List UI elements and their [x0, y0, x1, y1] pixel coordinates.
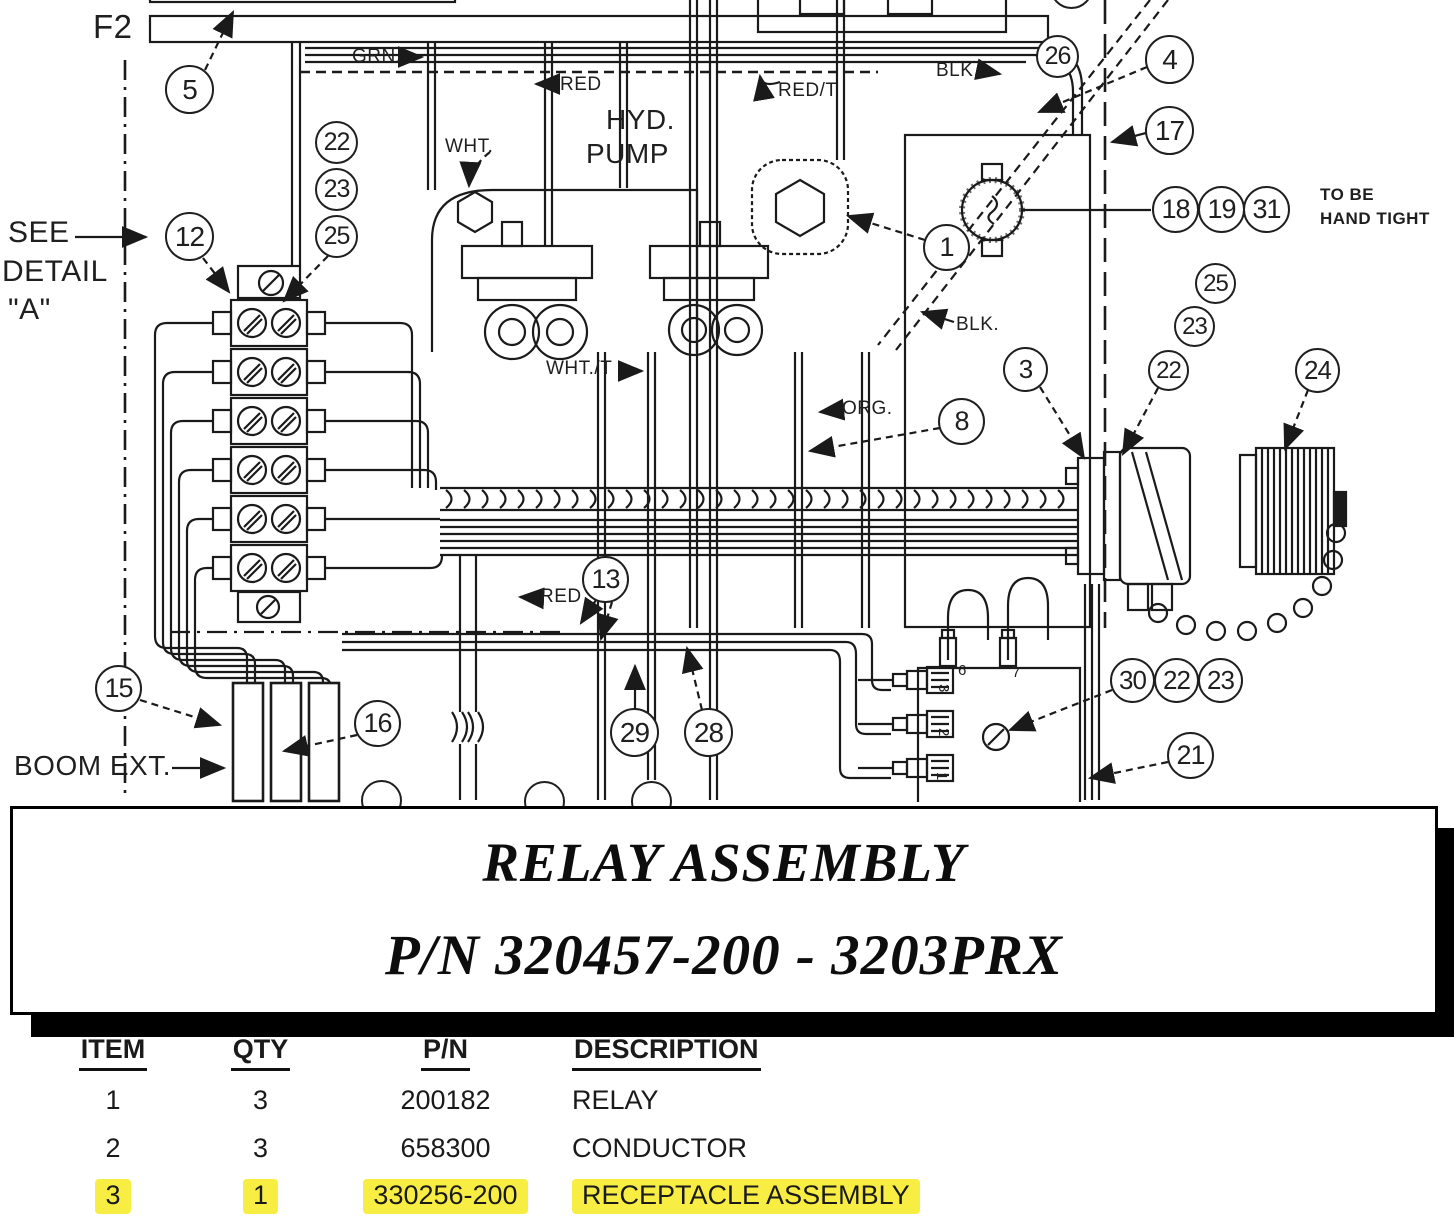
cell-item: 1	[38, 1085, 188, 1116]
label-see: SEE	[8, 216, 70, 250]
column-header-qty: QTY	[188, 1034, 333, 1071]
balloon-23: 23	[1198, 658, 1243, 703]
column-header-item: ITEM	[38, 1034, 188, 1071]
cell-item: 2	[38, 1133, 188, 1164]
label-detail-a: "A"	[8, 293, 51, 327]
cell-pn: 658300	[333, 1133, 558, 1164]
table-row-conductor: 2 3 658300 CONDUCTOR	[0, 1124, 1100, 1172]
parts-table: ITEM QTY P/N DESCRIPTION 1 3 200182 RELA…	[0, 1032, 1100, 1219]
balloon-4: 4	[1145, 35, 1194, 84]
balloon-23: 23	[1174, 306, 1215, 347]
balloon-31: 31	[1243, 186, 1290, 233]
balloon-13: 13	[582, 556, 629, 603]
label-blk-top: BLK.	[936, 60, 979, 82]
balloon-16: 16	[354, 700, 401, 747]
balloon-26: 26	[1036, 35, 1079, 78]
cell-description: CONDUCTOR	[558, 1133, 1100, 1164]
column-header-pn: P/N	[333, 1034, 558, 1071]
label-pump: PUMP	[586, 138, 669, 170]
balloon-25: 25	[1195, 263, 1236, 304]
balloon-22: 22	[1154, 658, 1199, 703]
balloon-24: 24	[1295, 348, 1340, 393]
wiring-diagram-page: 5222325122264171819312523223241813151629…	[0, 0, 1454, 1219]
balloon-22: 22	[315, 121, 358, 164]
label-blk-mid: BLK.	[956, 314, 999, 336]
balloon-25: 25	[315, 215, 358, 258]
balloon-15: 15	[95, 665, 142, 712]
label-pin-2: 2	[935, 728, 952, 737]
balloon-19: 19	[1198, 186, 1245, 233]
label-pin-1: 1	[933, 772, 950, 781]
cell-qty: 3	[188, 1085, 333, 1116]
balloon-30: 30	[1110, 658, 1155, 703]
balloon-1: 1	[923, 224, 970, 271]
title-block: RELAY ASSEMBLY P/N 320457-200 - 3203PRX	[10, 806, 1438, 1015]
label-f2: F2	[93, 8, 133, 46]
parts-table-header-row: ITEM QTY P/N DESCRIPTION	[0, 1032, 1100, 1072]
balloon-5: 5	[165, 65, 214, 114]
label-wht: WHT.	[445, 136, 493, 158]
balloon-28: 28	[684, 708, 733, 757]
label-boom-ext: BOOM EXT.	[14, 750, 171, 782]
label-hyd: HYD.	[606, 104, 675, 136]
table-row-receptacle-assembly-highlighted: 3 1 330256-200 RECEPTACLE ASSEMBLY	[0, 1172, 1100, 1219]
title-block-part-number: P/N 320457-200 - 3203PRX	[13, 923, 1435, 988]
label-wht-t: WHT./T	[546, 358, 612, 380]
cell-item: 3	[38, 1179, 188, 1214]
label-pin-7: 7	[1012, 664, 1021, 681]
cell-description: RECEPTACLE ASSEMBLY	[558, 1179, 1100, 1214]
label-to-be: TO BE	[1320, 185, 1374, 205]
balloon-22: 22	[1148, 350, 1189, 391]
cell-pn: 330256-200	[333, 1179, 558, 1214]
cell-pn: 200182	[333, 1085, 558, 1116]
cell-qty: 1	[188, 1179, 333, 1214]
label-red-t: RED/T	[778, 80, 838, 102]
label-detail: DETAIL	[2, 255, 108, 289]
title-block-assembly-name: RELAY ASSEMBLY	[13, 831, 1435, 894]
label-pin-6: 6	[958, 662, 967, 679]
relay-assembly-diagram: 5222325122264171819312523223241813151629…	[0, 0, 1454, 806]
balloon-8: 8	[938, 398, 985, 445]
label-hand-tight: HAND TIGHT	[1320, 209, 1430, 229]
balloon-23: 23	[315, 168, 358, 211]
balloon-18: 18	[1152, 186, 1199, 233]
balloon-21: 21	[1167, 732, 1214, 779]
balloon-12: 12	[165, 212, 214, 261]
balloon-17: 17	[1145, 106, 1194, 155]
label-red-lower: RED	[540, 586, 582, 608]
label-red-top: RED	[560, 74, 602, 96]
column-header-description: DESCRIPTION	[558, 1034, 1100, 1071]
label-pin-3: 3	[935, 684, 952, 693]
cell-description: RELAY	[558, 1085, 1100, 1116]
balloon-29: 29	[610, 708, 659, 757]
balloon-3: 3	[1003, 347, 1048, 392]
cell-qty: 3	[188, 1133, 333, 1164]
table-row-relay: 1 3 200182 RELAY	[0, 1076, 1100, 1124]
label-org: ORG.	[842, 398, 893, 420]
label-grn: GRN.	[352, 46, 402, 68]
